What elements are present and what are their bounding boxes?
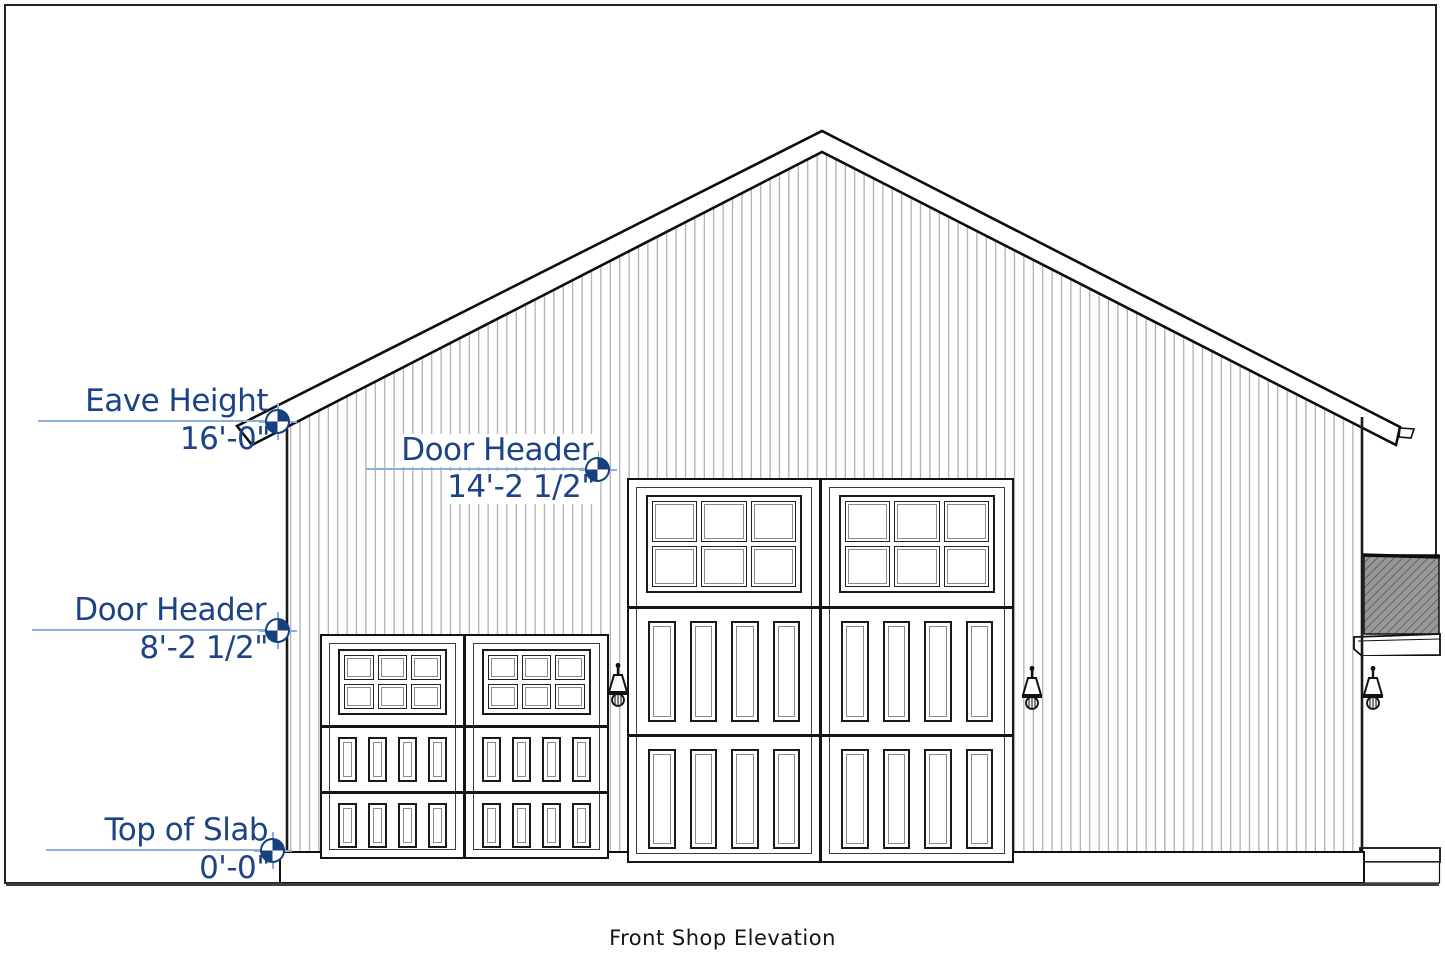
door-panel bbox=[773, 749, 801, 850]
window-pane bbox=[411, 684, 441, 709]
door-panel bbox=[966, 749, 994, 850]
door-leaf-left bbox=[629, 480, 819, 861]
window-pane bbox=[344, 655, 374, 680]
dim-value: 14'-2 1/2" bbox=[340, 471, 600, 504]
door-panel-row bbox=[648, 749, 800, 850]
door-panel bbox=[512, 737, 531, 782]
door-panel-row bbox=[648, 621, 800, 722]
door-window-grid bbox=[646, 495, 802, 593]
door-panel bbox=[731, 621, 759, 722]
door-panel-row bbox=[338, 803, 447, 848]
door-panel bbox=[398, 803, 417, 848]
door-section-divider bbox=[629, 734, 819, 737]
door-leaf-right bbox=[822, 480, 1012, 861]
dim-value: 0'-0" bbox=[30, 852, 270, 885]
rake-return-cap bbox=[1399, 428, 1414, 438]
dim-label: Door Header bbox=[340, 434, 598, 467]
door-panel bbox=[648, 621, 676, 722]
door-section-divider bbox=[629, 606, 819, 609]
window-pane bbox=[652, 501, 697, 542]
window-pane bbox=[555, 655, 585, 680]
wing-gutter bbox=[1354, 634, 1440, 656]
door-panel bbox=[648, 749, 676, 850]
door-panel-row bbox=[338, 737, 447, 782]
door-leaf-left bbox=[322, 636, 463, 857]
door-panel bbox=[428, 737, 447, 782]
window-pane bbox=[701, 546, 746, 587]
door-panel bbox=[690, 621, 718, 722]
wing-roof-hatch bbox=[1364, 555, 1439, 634]
window-pane bbox=[488, 684, 518, 709]
drawing-title: Front Shop Elevation bbox=[0, 926, 1445, 950]
dim-label: Top of Slab bbox=[30, 814, 268, 847]
door-panel bbox=[428, 803, 447, 848]
wing-foundation bbox=[1364, 862, 1440, 883]
door-panel bbox=[841, 621, 869, 722]
window-pane bbox=[701, 501, 746, 542]
window-pane bbox=[751, 546, 796, 587]
window-pane bbox=[944, 501, 989, 542]
datum-marker-icon bbox=[265, 618, 290, 643]
door-panel bbox=[368, 803, 387, 848]
dim-value: 8'-2 1/2" bbox=[18, 632, 268, 665]
window-pane bbox=[488, 655, 518, 680]
door-panel bbox=[572, 737, 591, 782]
window-pane bbox=[411, 655, 441, 680]
door-panel bbox=[338, 737, 357, 782]
door-leaf-right bbox=[466, 636, 607, 857]
window-pane bbox=[522, 655, 552, 680]
window-pane bbox=[344, 684, 374, 709]
door-panel bbox=[841, 749, 869, 850]
window-pane bbox=[522, 684, 552, 709]
door-panel bbox=[883, 621, 911, 722]
door-panel bbox=[482, 737, 501, 782]
door-panel bbox=[542, 737, 561, 782]
datum-marker-icon bbox=[260, 838, 285, 863]
wing-roof-edge bbox=[1362, 555, 1440, 557]
door-panel bbox=[512, 803, 531, 848]
door-panel-row bbox=[841, 749, 993, 850]
door-window-grid bbox=[338, 649, 447, 715]
door-panel-row bbox=[482, 803, 591, 848]
window-pane bbox=[845, 501, 890, 542]
door-panel bbox=[338, 803, 357, 848]
door-panel bbox=[482, 803, 501, 848]
door-panel bbox=[924, 749, 952, 850]
door-panel bbox=[773, 621, 801, 722]
window-pane bbox=[652, 546, 697, 587]
dim-label: Door Header bbox=[18, 594, 266, 627]
datum-marker-icon bbox=[585, 457, 610, 482]
door-panel bbox=[368, 737, 387, 782]
door-panel-row bbox=[841, 621, 993, 722]
door-section-divider bbox=[822, 734, 1012, 737]
elevation-sheet: Eave Height 16'-0" Door Header 14'-2 1/2… bbox=[0, 0, 1445, 965]
door-section-divider bbox=[322, 725, 463, 728]
window-pane bbox=[845, 546, 890, 587]
door-panel bbox=[690, 749, 718, 850]
large-garage-door bbox=[627, 478, 1014, 863]
dim-value: 16'-0" bbox=[20, 423, 270, 456]
door-panel bbox=[731, 749, 759, 850]
window-pane bbox=[894, 501, 939, 542]
door-panel bbox=[924, 621, 952, 722]
small-garage-door bbox=[320, 634, 609, 859]
window-pane bbox=[555, 684, 585, 709]
door-panel bbox=[542, 803, 561, 848]
door-window-grid bbox=[482, 649, 591, 715]
dim-label: Eave Height bbox=[20, 385, 268, 418]
window-pane bbox=[751, 501, 796, 542]
window-pane bbox=[378, 684, 408, 709]
door-panel bbox=[966, 621, 994, 722]
door-section-divider bbox=[322, 791, 463, 794]
datum-marker-icon bbox=[265, 409, 290, 434]
door-section-divider bbox=[466, 791, 607, 794]
window-pane bbox=[378, 655, 408, 680]
door-window-grid bbox=[839, 495, 995, 593]
door-panel bbox=[883, 749, 911, 850]
door-panel-row bbox=[482, 737, 591, 782]
wing-base-trim bbox=[1360, 848, 1440, 862]
door-section-divider bbox=[466, 725, 607, 728]
window-pane bbox=[944, 546, 989, 587]
door-section-divider bbox=[822, 606, 1012, 609]
door-panel bbox=[572, 803, 591, 848]
door-panel bbox=[398, 737, 417, 782]
window-pane bbox=[894, 546, 939, 587]
